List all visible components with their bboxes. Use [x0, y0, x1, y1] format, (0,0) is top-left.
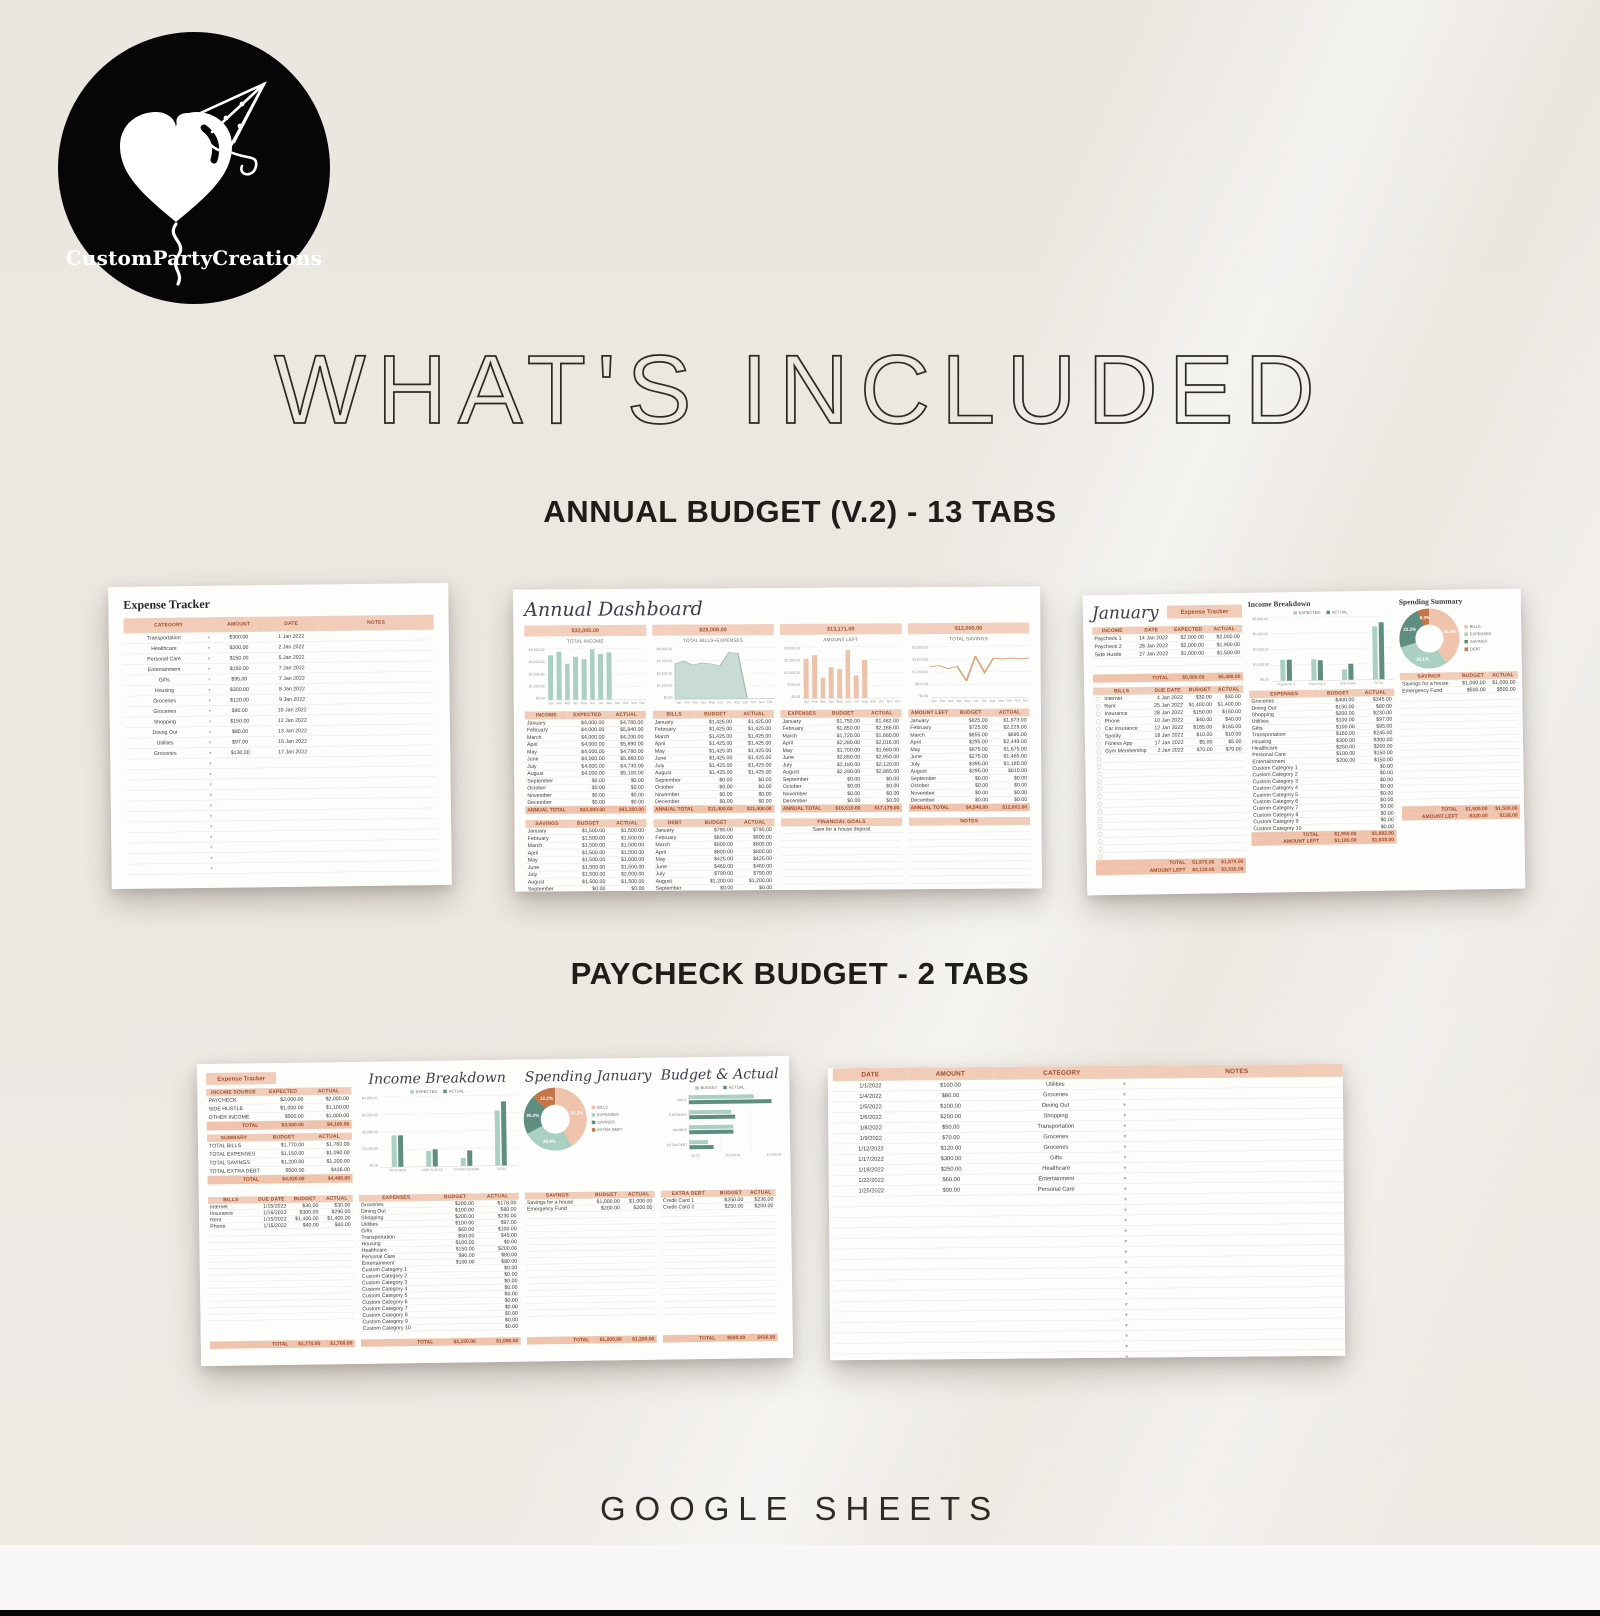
plot-area: [379, 1095, 518, 1168]
bills-table-total-cell: $3,130.00: [1188, 866, 1217, 874]
panel-area-chart: $5,000.00$3,750.00$2,500.00$1,250.00$0.0…: [652, 647, 774, 700]
bar-slot: [555, 648, 564, 700]
expense-tracker-table-cell: ▾: [205, 758, 215, 769]
expense-tracker-table-cell: ▾: [205, 716, 215, 727]
transactions-table-cell: [835, 1343, 910, 1354]
bar: [854, 676, 859, 698]
tables-column: Expense TrackerINCOME SOURCEEXPECTEDACTU…: [206, 1071, 353, 1191]
transactions-table-cell: ▾: [1119, 1236, 1132, 1247]
expenses: EXPENSESBUDGETACTUALGroceries$200.00$178…: [359, 1193, 521, 1347]
sheet5-inner: DATEAMOUNTCATEGORYNOTES1/1/2022$100.00Ut…: [828, 1064, 1346, 1360]
donut-slice-label: 40.4%: [1443, 629, 1456, 634]
transactions-table-cell: ▾: [1118, 1142, 1131, 1153]
transactions-table-cell: ▾: [1119, 1257, 1132, 1268]
bottom-table-header: SAVINGS: [525, 820, 568, 828]
expense-tracker-table-cell: ▾: [204, 695, 214, 706]
hbar-cat-label: BILLS: [659, 1098, 688, 1102]
bottom-table-header: ACTUAL: [607, 819, 646, 827]
checkbox-icon: [1096, 734, 1101, 739]
x-cat-label: Paycheck 2: [1302, 682, 1333, 686]
spending-summary-title: Spending Summary: [1399, 597, 1517, 607]
expenses-legend-swatch: [1464, 632, 1468, 636]
sheet-paycheck-dashboard: Expense TrackerINCOME SOURCEEXPECTEDACTU…: [197, 1056, 793, 1366]
extra-debt-table-cell: [717, 1307, 747, 1314]
transactions-table-cell: ▾: [1120, 1278, 1133, 1289]
transactions-table-cell: 1/25/2022: [834, 1186, 909, 1197]
expense-tracker-table-cell: 9 Jan 2022: [264, 694, 319, 705]
transactions-table-cell: [995, 1352, 1120, 1361]
x-tick-label: Jul: [852, 700, 860, 704]
expenses-total-total-cell: $1,090.00: [478, 1337, 521, 1345]
transactions-table-cell: [835, 1322, 910, 1333]
expense-tracker-table-cell: ▾: [206, 811, 216, 822]
notes-table-cell: [909, 883, 1030, 891]
transactions-table-cell: [835, 1291, 910, 1302]
bar: [606, 652, 611, 699]
x-tick-label: Mar: [947, 699, 955, 703]
transactions-table-header: CATEGORY: [993, 1066, 1131, 1080]
extra-debt-table-cell: [662, 1307, 717, 1314]
bar-slot: [571, 648, 580, 700]
transactions-table-cell: [909, 1227, 994, 1238]
panel-total-value: $12,000.00: [908, 622, 1030, 634]
bottom-table-cell: $0.00: [608, 885, 647, 892]
actual-bar: [690, 1145, 714, 1149]
transactions-table-cell: [909, 1248, 994, 1259]
checkbox-icon: [1098, 824, 1103, 829]
bottom-table-cell: $0.00: [736, 884, 775, 891]
bar-slot: [893, 646, 902, 698]
checkbox-icon: [1098, 846, 1103, 851]
right-column: Spending Summary40.4%30.1%23.2%6.3%BILLS…: [1399, 597, 1521, 871]
spending-legend-item: DEBT: [1465, 647, 1481, 652]
bills-total-total-cell: $1,760.00: [323, 1339, 355, 1347]
expense-tracker-table-cell: [266, 810, 321, 821]
bills-table-cell: [1093, 710, 1102, 718]
transactions-table-cell: ▾: [1119, 1215, 1132, 1226]
expenses-table: EXPENSESBUDGETACTUALGroceries$200.00$178…: [359, 1193, 521, 1332]
expenses-table-total-cell: AMOUNT LEFT: [1252, 838, 1322, 846]
expense-tracker-table-cell: ▾: [206, 853, 216, 864]
income-breakdown-chart: $6,000.00$4,500.00$3,000.00$1,500.00$0.0…: [1248, 616, 1394, 682]
y-tick-label: $1,250.00: [912, 670, 928, 674]
x-tick-label: May: [963, 699, 971, 703]
checkbox-icon: [1096, 756, 1101, 761]
transactions-table-cell: 1/8/2022: [833, 1123, 908, 1134]
checkbox-icon: [1097, 786, 1102, 791]
month-tables-row: INCOMEEXPECTEDACTUALJanuary$4,000.00$4,7…: [525, 708, 1031, 813]
income-legend-item: EXPECTED: [1293, 610, 1320, 615]
transactions-table-cell: ▾: [1120, 1289, 1133, 1300]
month-table-header: ACTUAL: [862, 709, 901, 717]
panel-label: TOTAL BILLS+EXPENSES: [652, 638, 774, 644]
spending-legend: BILLSEXPENSESSAVINGSEXTRA DEBT: [592, 1105, 623, 1132]
savings-total-total-cell: TOTAL: [527, 1336, 592, 1344]
month-table: INCOMEEXPECTEDACTUALJanuary$4,000.00$4,7…: [525, 711, 647, 814]
actual-bar: [467, 1150, 472, 1166]
transactions-table-cell: 1/9/2022: [833, 1133, 908, 1144]
transactions-table-cell: [909, 1216, 994, 1227]
bottom-table-cell: September: [526, 886, 569, 892]
hbar-x-axis: $0.00$1,000.00$2,000.00: [691, 1153, 781, 1158]
y-tick-label: $1,250.00: [657, 684, 673, 688]
bottom-table: NOTES: [909, 817, 1031, 892]
expense-tracker-button: Expense Tracker: [1167, 604, 1242, 618]
transactions-table-cell: ▾: [1120, 1331, 1133, 1342]
brand-name: CustomPartyCreations: [58, 246, 330, 270]
x-tick-label: Jun: [716, 701, 724, 705]
expenses-total-total-cell: TOTAL: [361, 1338, 436, 1347]
x-tick-label: Apr: [572, 702, 580, 706]
bar: [820, 678, 825, 699]
x-tick-label: Oct: [749, 701, 757, 705]
legend-label: ACTUAL: [729, 1085, 745, 1090]
header-row: JanuaryExpense Tracker: [1092, 601, 1242, 623]
plot-area: [674, 647, 774, 700]
bar-group: [1301, 617, 1333, 681]
expenses-total-total-cell: $1,150.00: [436, 1338, 479, 1346]
expected-bar: [1280, 660, 1285, 681]
bar-slot: [605, 648, 614, 700]
month-table-header: INCOME: [525, 711, 568, 719]
checkbox-icon: [1096, 696, 1101, 701]
panel-total-value: $28,009.00: [652, 624, 774, 636]
y-axis: $2,500.00$1,875.00$1,250.00$625.00$0.00: [908, 646, 930, 698]
bills-table-total-cell: AMOUNT LEFT: [1096, 866, 1188, 875]
checkbox-icon: [1097, 809, 1102, 814]
month-table-total-cell: $11,400.00: [696, 805, 735, 812]
expense-tracker-table-cell: 17 Jan 2022: [265, 747, 320, 758]
expense-tracker-table-cell: [216, 810, 266, 821]
bar: [582, 659, 587, 699]
hbar-cat-label: SAVINGS: [660, 1128, 689, 1132]
transactions-table-cell: [834, 1249, 909, 1260]
savings-total-total-cell: $1,200.00: [592, 1336, 625, 1344]
x-axis: Paycheck 1Paycheck 2Side hustleTOTAL: [1271, 681, 1394, 686]
bar: [557, 652, 562, 700]
income-legend-item: ACTUAL: [443, 1089, 464, 1094]
summary-table-total-cell: $4,620.00: [261, 1175, 307, 1184]
budget-legend-swatch: [695, 1086, 699, 1090]
expense-tracker-table-cell: [216, 842, 266, 853]
bar: [565, 664, 570, 700]
bills-total-total-cell: TOTAL: [210, 1340, 291, 1349]
bar: [845, 650, 850, 698]
checkbox-icon: [1098, 831, 1103, 836]
bar-slot: [819, 647, 828, 699]
expense-tracker-table-cell: ▾: [205, 727, 215, 738]
x-axis: JanFebMarAprMayJunJulAugSepOctNovDec: [930, 699, 1030, 703]
expenses-table: EXPENSESBUDGETACTUALGroceries$400.00$345…: [1249, 689, 1396, 846]
expenses-total: TOTAL$1,150.00$1,090.00: [361, 1337, 521, 1347]
hbar-tick: $1,000.00: [726, 1154, 741, 1158]
bar-group: [483, 1095, 518, 1166]
bottom-table: SAVINGSBUDGETACTUALJanuary$1,500.00$1,50…: [525, 819, 647, 892]
expense-tracker-table-cell: [266, 820, 321, 831]
expense-tracker-table-cell: 2 Jan 2022: [264, 642, 319, 653]
transactions-table-cell: ▾: [1119, 1268, 1132, 1279]
expense-tracker-table-cell: ▾: [204, 653, 214, 664]
transactions-table-cell: ▾: [1120, 1299, 1133, 1310]
transactions-table-cell: [835, 1312, 910, 1323]
legend-label: EXPECTED: [1299, 610, 1321, 615]
panel-bar-chart: $6,000.00$4,500.00$3,000.00$1,500.00$0.0…: [524, 648, 646, 701]
extra-debt-total-total-cell: TOTAL: [663, 1334, 718, 1342]
notes-table-cell: [781, 883, 902, 891]
bills-table-cell: [1095, 778, 1104, 786]
bar-group: [1270, 617, 1302, 681]
bar-group: [1362, 616, 1394, 680]
x-tick-label: Dec: [1021, 699, 1029, 703]
checkbox-icon: [1096, 741, 1101, 746]
expense-tracker-table-cell: [322, 861, 437, 873]
month-table-total-cell: $41,180.00: [607, 806, 646, 813]
expense-tracker-table-cell: [216, 831, 266, 842]
month-table-total-cell: $17,179.00: [863, 804, 902, 811]
transactions-table-cell: [834, 1196, 909, 1207]
month-title: January: [1092, 602, 1159, 623]
hbar-row: EXPENSES: [660, 1108, 781, 1121]
transactions-table-cell: 1/1/2022: [833, 1081, 908, 1092]
transactions-table-cell: 1/4/2022: [833, 1091, 908, 1102]
transactions-table-cell: [910, 1342, 995, 1353]
x-axis: PAYCHECKSIDE HUSTLEOTHER INCOMETOTAL: [380, 1167, 518, 1172]
checkbox-icon: [1096, 726, 1101, 731]
x-tick-label: Sep: [997, 699, 1005, 703]
y-tick-label: $1,500.00: [1253, 663, 1269, 667]
summary-table: SUMMARYBUDGETACTUALTOTAL BILLS$1,770.00$…: [207, 1132, 353, 1184]
bills-table-cell: [1094, 725, 1103, 733]
transactions-table-cell: 1/17/2022: [833, 1154, 908, 1165]
dashboard-panel: $12,000.00TOTAL SAVINGS$2,500.00$1,875.0…: [908, 622, 1030, 703]
y-tick-label: $0.00: [664, 696, 673, 700]
income-legend-item: EXPECTED: [410, 1089, 437, 1094]
income-table: INCOMEDATEEXPECTEDACTUALPaycheck 114 Jan…: [1092, 625, 1243, 683]
x-tick-label: Oct: [622, 701, 630, 705]
transactions-table-cell: $50.00: [908, 1122, 993, 1133]
bar-slot: [630, 648, 639, 700]
bottom-table: DEBTBUDGETACTUALJanuary$790.00$790.00Feb…: [653, 818, 775, 891]
transactions-table-cell: 1/5/2022: [833, 1102, 908, 1113]
checkbox-icon: [1096, 704, 1101, 709]
bar-slot: [868, 646, 877, 698]
y-tick-label: $1,500.00: [785, 671, 801, 675]
bar-slot: [835, 647, 844, 699]
savings-table: SAVINGSBUDGETACTUALSavings for a house$1…: [525, 1191, 657, 1317]
month-table-header: ACTUAL: [990, 708, 1029, 716]
actual-bar: [1287, 660, 1292, 681]
bills-table-cell: [1093, 703, 1102, 711]
x-tick-label: Dec: [766, 701, 774, 705]
expenses-table-cell: Custom Category 10: [361, 1324, 436, 1332]
legend-label: BILLS: [597, 1105, 608, 1110]
bills-table-cell: [1096, 845, 1105, 853]
bar-slot: [588, 648, 597, 700]
x-tick-label: Aug: [988, 699, 996, 703]
expense-tracker-table-cell: ▾: [205, 706, 215, 717]
transactions-table-cell: [834, 1217, 909, 1228]
expense-tracker-table-cell: [216, 779, 266, 790]
expenses-table-total-cell: $1,638.00: [1359, 837, 1397, 844]
income-source-table: INCOME SOURCEEXPECTEDACTUALPAYCHECK$2,00…: [206, 1087, 352, 1131]
transactions-table-cell: ▾: [1119, 1247, 1132, 1258]
y-tick-label: $1,500.00: [529, 685, 545, 689]
rows: BILLSDUE DATEBUDGETACTUALInternet1/15/20…: [208, 1195, 355, 1342]
income-table-total-cell: $5,000.00: [1171, 673, 1207, 682]
y-tick-label: $4,500.00: [529, 661, 545, 665]
bills-table-cell: [1095, 800, 1104, 808]
transactions-table-cell: ▾: [1120, 1310, 1133, 1321]
checkbox-icon: [1097, 771, 1102, 776]
expense-tracker-table-cell: ▾: [204, 643, 214, 654]
y-tick-label: $6,000.00: [1252, 618, 1268, 622]
x-tick-label: Nov: [885, 700, 893, 704]
spending-legend-item: BILLS: [1464, 624, 1480, 629]
bar-slot: [596, 648, 605, 700]
transactions-table-cell: ▾: [1118, 1089, 1131, 1100]
columns: JanuaryExpense TrackerINCOMEDATEEXPECTED…: [1092, 597, 1516, 876]
bills-table-cell: [1094, 770, 1103, 778]
plot-area: [546, 648, 646, 701]
donut-row: 40.4%30.1%23.2%6.3%BILLSEXPENSESSAVINGSD…: [1399, 607, 1518, 669]
transactions-table-cell: [909, 1237, 994, 1248]
bar-slot: [885, 646, 894, 698]
expense-tracker-button: Expense Tracker: [206, 1072, 276, 1085]
month-table: AMOUNT LEFTBUDGETACTUALJanuary$825.00$1,…: [908, 708, 1030, 811]
expense-tracker-table-cell: $300.00: [214, 684, 264, 695]
expense-tracker-table-cell: [267, 862, 322, 873]
bottom-table-cell: September: [654, 885, 697, 892]
bills-total: TOTAL$1,770.00$1,760.00: [210, 1339, 355, 1349]
hbar-cat-label: EXTRA DEBT: [660, 1143, 689, 1147]
section-heading-paycheck-budget: PAYCHECK BUDGET - 2 TABS: [0, 956, 1600, 992]
sheet-january-budget: JanuaryExpense TrackerINCOMEDATEEXPECTED…: [1083, 589, 1526, 896]
expense-tracker-table-cell: [266, 799, 321, 810]
legend-label: SAVINGS: [597, 1120, 615, 1125]
savings-table-cell: [526, 1309, 591, 1316]
bills-table: BILLSDUE DATEBUDGETACTUALInternet1/15/20…: [208, 1195, 355, 1321]
month-table: INCOMEEXPECTEDACTUALJanuary$4,000.00$4,7…: [525, 711, 647, 814]
hbar-row: SAVINGS: [660, 1123, 781, 1136]
x-tick-label: May: [708, 701, 716, 705]
checkbox-icon: [1097, 764, 1102, 769]
hbar-legend-item: BUDGET: [695, 1085, 717, 1090]
month-table: EXPENSESBUDGETACTUALJanuary$1,750.00$1,4…: [780, 709, 902, 812]
x-tick-label: May: [580, 702, 588, 706]
x-tick-label: Nov: [630, 701, 638, 705]
y-tick-label: $1,875.00: [912, 658, 928, 662]
bar: [804, 659, 809, 699]
x-tick-label: Jan: [802, 700, 810, 704]
bottom-table-cell: $0.00: [569, 885, 608, 891]
donut-slice-label: 20.2%: [526, 1113, 539, 1118]
x-tick-label: Mar: [819, 700, 827, 704]
donut-hole: [541, 1104, 570, 1133]
extra-debt-table-cell: [747, 1307, 777, 1314]
transactions-table-cell: 1/22/2022: [834, 1175, 909, 1186]
bar-group: [414, 1096, 449, 1167]
dashboard-panel: $28,009.00TOTAL BILLS+EXPENSES$5,000.00$…: [652, 624, 774, 705]
savings-legend-swatch: [592, 1121, 596, 1125]
x-tick-label: Feb: [811, 700, 819, 704]
month-table-total-cell: $4,540.00: [952, 804, 991, 811]
transactions-table-cell: [834, 1228, 909, 1239]
y-tick-label: $750.00: [788, 683, 801, 687]
plot-area: [802, 646, 902, 699]
extra-debt: EXTRA DEBTBUDGETACTUALCredit Card 1$250.…: [661, 1189, 778, 1343]
transactions-table-cell: [910, 1300, 995, 1311]
y-tick-label: $3,750.00: [657, 660, 673, 664]
hbar-legend: BUDGETACTUAL: [659, 1085, 780, 1091]
transactions-table-cell: 1/18/2022: [834, 1165, 909, 1176]
y-tick-label: $0.00: [919, 695, 928, 699]
donut-slice-label: 26.4%: [543, 1138, 556, 1143]
donut-slice-label: 41.2%: [571, 1110, 584, 1115]
bar-slot: [563, 648, 572, 700]
expense-tracker-table-cell: ▾: [206, 779, 216, 790]
left-column: JanuaryExpense TrackerINCOMEDATEEXPECTED…: [1092, 601, 1246, 875]
month-table-header: BILLS: [653, 710, 696, 718]
hbar-tick: $2,000.00: [767, 1153, 782, 1157]
y-tick-label: $2,500.00: [912, 646, 928, 650]
budget-bar: [690, 1140, 708, 1144]
legend-label: DEBT: [1470, 647, 1481, 652]
donut-column: Spending January41.2%26.4%20.2%12.2%BILL…: [523, 1067, 655, 1187]
bar: [829, 667, 834, 698]
transactions-table-cell: $100.00: [908, 1080, 993, 1091]
legend-label: ACTUAL: [1332, 610, 1348, 615]
sheet3-inner: JanuaryExpense TrackerINCOMEDATEEXPECTED…: [1083, 589, 1526, 896]
transactions-table-cell: [835, 1301, 910, 1312]
expense-tracker-table-cell: [216, 821, 266, 832]
bills-table-cell: [1095, 808, 1104, 816]
transactions-table-cell: ▾: [1119, 1184, 1132, 1195]
extra-debt-total-total-cell: $436.00: [748, 1334, 778, 1342]
expense-tracker-table-cell: $150.00: [214, 663, 264, 674]
transactions-table-cell: ▾: [1119, 1194, 1132, 1205]
x-tick-label: Jun: [844, 700, 852, 704]
plot-area: [1270, 616, 1394, 682]
expense-tracker-table-cell: [265, 757, 320, 768]
x-tick-label: Apr: [827, 700, 835, 704]
expected-bar: [391, 1136, 396, 1167]
rows: EXTRA DEBTBUDGETACTUALCredit Card 1$250.…: [661, 1189, 778, 1335]
transactions-table-cell: 1/12/2022: [833, 1144, 908, 1155]
bar-slot: [827, 647, 836, 699]
budget-bar: [689, 1110, 731, 1115]
checkbox-icon: [1097, 779, 1102, 784]
transactions-table-cell: [909, 1258, 994, 1269]
y-tick-label: $1,000.00: [363, 1147, 379, 1151]
bottom-black-bar: [0, 1610, 1600, 1616]
spending-legend-item: EXPENSES: [1464, 632, 1491, 637]
expense-tracker-table-cell: ▾: [204, 674, 214, 685]
transactions-table-cell: ▾: [1119, 1163, 1132, 1174]
hbar-tick: $0.00: [691, 1154, 699, 1158]
y-tick-label: $0.00: [791, 695, 800, 699]
expense-tracker-table-cell: [216, 852, 266, 863]
x-axis: JanFebMarAprMayJunJulAugSepOctNovDec: [675, 701, 775, 705]
bottom-table-header: ACTUAL: [735, 818, 774, 826]
transactions-table-header: AMOUNT: [908, 1067, 993, 1081]
y-tick-label: $3,000.00: [362, 1114, 378, 1118]
expense-tracker-table-cell: ▾: [204, 685, 214, 696]
bar-slot: [843, 647, 852, 699]
bills-table-cell: [290, 1313, 322, 1320]
month-table-total-cell: ANNUAL TOTAL: [909, 804, 952, 812]
expense-tracker-table-header: NOTES: [319, 615, 434, 631]
sheet-annual-dashboard: Annual Dashboard$32,000.00TOTAL INCOME$6…: [513, 586, 1042, 891]
